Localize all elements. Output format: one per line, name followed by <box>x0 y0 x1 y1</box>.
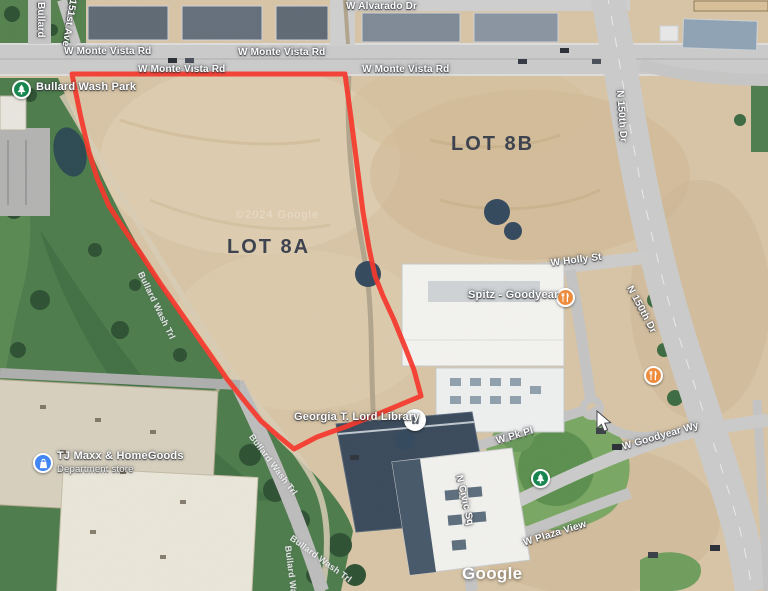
road-label: W Monte Vista Rd <box>238 47 325 58</box>
restaurant-icon <box>560 292 571 303</box>
lot-8a-label: LOT 8A <box>227 236 310 259</box>
poi-label-library[interactable]: Georgia T. Lord Library <box>294 411 420 423</box>
store-pin[interactable] <box>33 453 53 473</box>
google-logo[interactable]: Google <box>462 564 522 584</box>
tree-icon <box>535 473 546 484</box>
shopping-icon <box>38 458 49 469</box>
road-label: Bullard <box>35 2 46 38</box>
lot-8b-label: LOT 8B <box>451 133 534 156</box>
restaurant-icon <box>648 370 659 381</box>
tile-watermark: ©2024 Google <box>236 209 319 221</box>
poi-label-bullard-wash-park[interactable]: Bullard Wash Park <box>36 81 136 93</box>
road-label: W Monte Vista Rd <box>362 64 449 75</box>
tree-icon <box>16 84 27 95</box>
park-pin[interactable] <box>12 80 31 99</box>
satellite-map-view[interactable]: W Alvarado Dr W Monte Vista Rd W Monte V… <box>0 0 768 591</box>
mouse-cursor <box>595 410 615 434</box>
poi-sublabel-tjmaxx: Department store <box>57 464 134 475</box>
road-label: W Monte Vista Rd <box>64 46 151 57</box>
restaurant-pin[interactable] <box>644 366 663 385</box>
road-label: W Alvarado Dr <box>346 1 417 12</box>
park-pin[interactable] <box>531 469 550 488</box>
road-label: W Monte Vista Rd <box>138 64 225 75</box>
poi-label-spitz[interactable]: Spitz - Goodyear <box>468 289 559 301</box>
poi-label-tjmaxx[interactable]: TJ Maxx & HomeGoods <box>57 450 184 462</box>
